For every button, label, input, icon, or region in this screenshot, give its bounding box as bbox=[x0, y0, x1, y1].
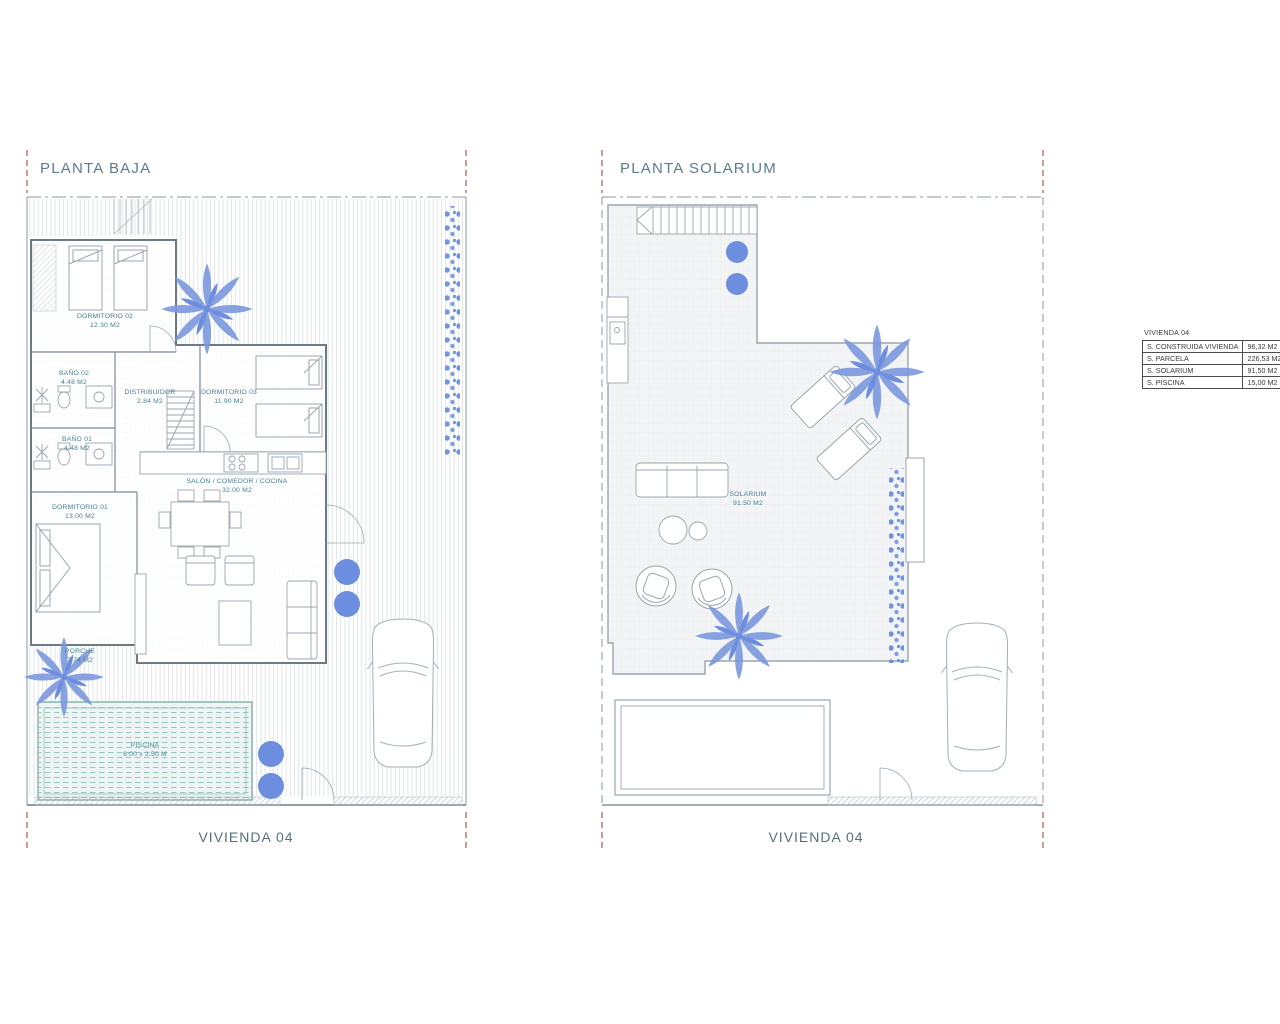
area-summary: VIVIENDA 04 S. CONSTRUIDA VIVIENDA 96,32… bbox=[1142, 328, 1280, 389]
car-icon bbox=[942, 623, 1013, 771]
floor-plan-drawing bbox=[0, 0, 1280, 1024]
bed-icon bbox=[114, 246, 147, 310]
plan-title-baja: PLANTA BAJA bbox=[40, 160, 151, 177]
gate-door-arc bbox=[880, 768, 912, 800]
room-label-bano-01: BAÑO 014.48 M2 bbox=[7, 436, 147, 453]
table-row: S. CONSTRUIDA VIVIENDA 96,32 M2 bbox=[1143, 341, 1280, 353]
palm-tree-icon bbox=[830, 325, 925, 420]
room-label-dormitorio-02: DORMITORIO 0212.30 M2 bbox=[35, 313, 175, 330]
plan-footer-solarium: VIVIENDA 04 bbox=[736, 829, 896, 845]
planter-ledge bbox=[906, 458, 924, 562]
boundary-fence bbox=[35, 797, 462, 805]
table-row: S. PISCINA 15,00 M2 bbox=[1143, 377, 1280, 389]
armchair-icon bbox=[636, 566, 676, 606]
floorplan-sheet: PLANTA BAJA PLANTA SOLARIUM DORMITORIO 0… bbox=[0, 0, 1280, 1024]
armchair-icon bbox=[692, 569, 732, 609]
palm-tree-icon bbox=[161, 263, 252, 354]
room-label-solarium: SOLARIUM91.50 M2 bbox=[678, 491, 818, 508]
room-label-porche: PORCHE7.74 M2 bbox=[10, 648, 150, 665]
table-row: S. SOLARIUM 91,50 M2 bbox=[1143, 365, 1280, 377]
room-label-bano-02: BAÑO 024.48 M2 bbox=[4, 370, 144, 387]
room-label-dormitorio-03: DORMITORIO 0311.90 M2 bbox=[159, 389, 299, 406]
hedge-icon bbox=[889, 468, 904, 663]
room-label-dormitorio-01: DORMITORIO 0113.00 M2 bbox=[10, 504, 150, 521]
car-icon bbox=[368, 619, 439, 767]
plan-title-solarium: PLANTA SOLARIUM bbox=[620, 160, 777, 177]
boundary-fence bbox=[828, 797, 1036, 805]
kitchenette bbox=[607, 297, 628, 383]
double-bed-icon bbox=[36, 524, 100, 612]
closet bbox=[33, 245, 56, 311]
room-label-salon: SALÓN / COMEDOR / COCINA32.00 M2 bbox=[167, 478, 307, 495]
bed-icon bbox=[69, 246, 102, 310]
pool-outline bbox=[615, 700, 830, 795]
stairs-icon bbox=[637, 207, 757, 234]
plan-footer-baja: VIVIENDA 04 bbox=[166, 829, 326, 845]
room-label-piscina: PISCINA6.00 x 2.50 M bbox=[75, 742, 215, 759]
bed-icon bbox=[256, 356, 322, 389]
palm-tree-icon bbox=[695, 592, 782, 679]
kitchen-counter bbox=[140, 452, 326, 474]
plan-planta-solarium bbox=[602, 150, 1043, 848]
area-summary-table: S. CONSTRUIDA VIVIENDA 96,32 M2 S. PARCE… bbox=[1142, 340, 1280, 389]
area-summary-title: VIVIENDA 04 bbox=[1144, 328, 1280, 337]
table-row: S. PARCELA 226,53 M2 bbox=[1143, 353, 1280, 365]
bed-icon bbox=[256, 404, 322, 437]
hedge-icon bbox=[445, 206, 460, 456]
